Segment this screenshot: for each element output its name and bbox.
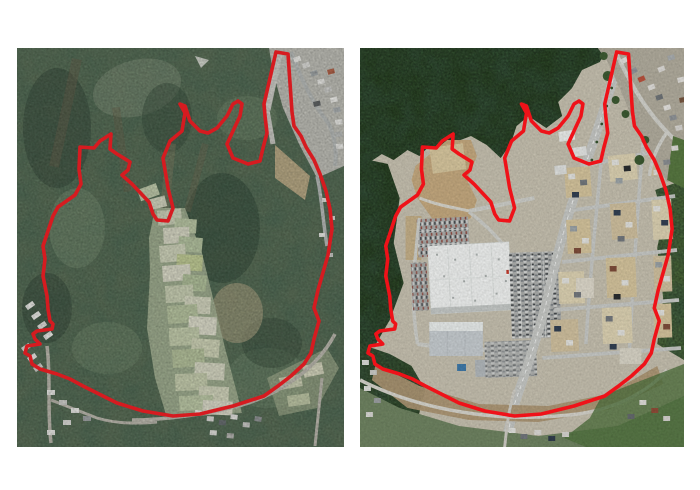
aerial-photo-before <box>17 48 344 447</box>
figure-canvas <box>0 0 700 490</box>
aerial-photo-after <box>360 48 684 447</box>
